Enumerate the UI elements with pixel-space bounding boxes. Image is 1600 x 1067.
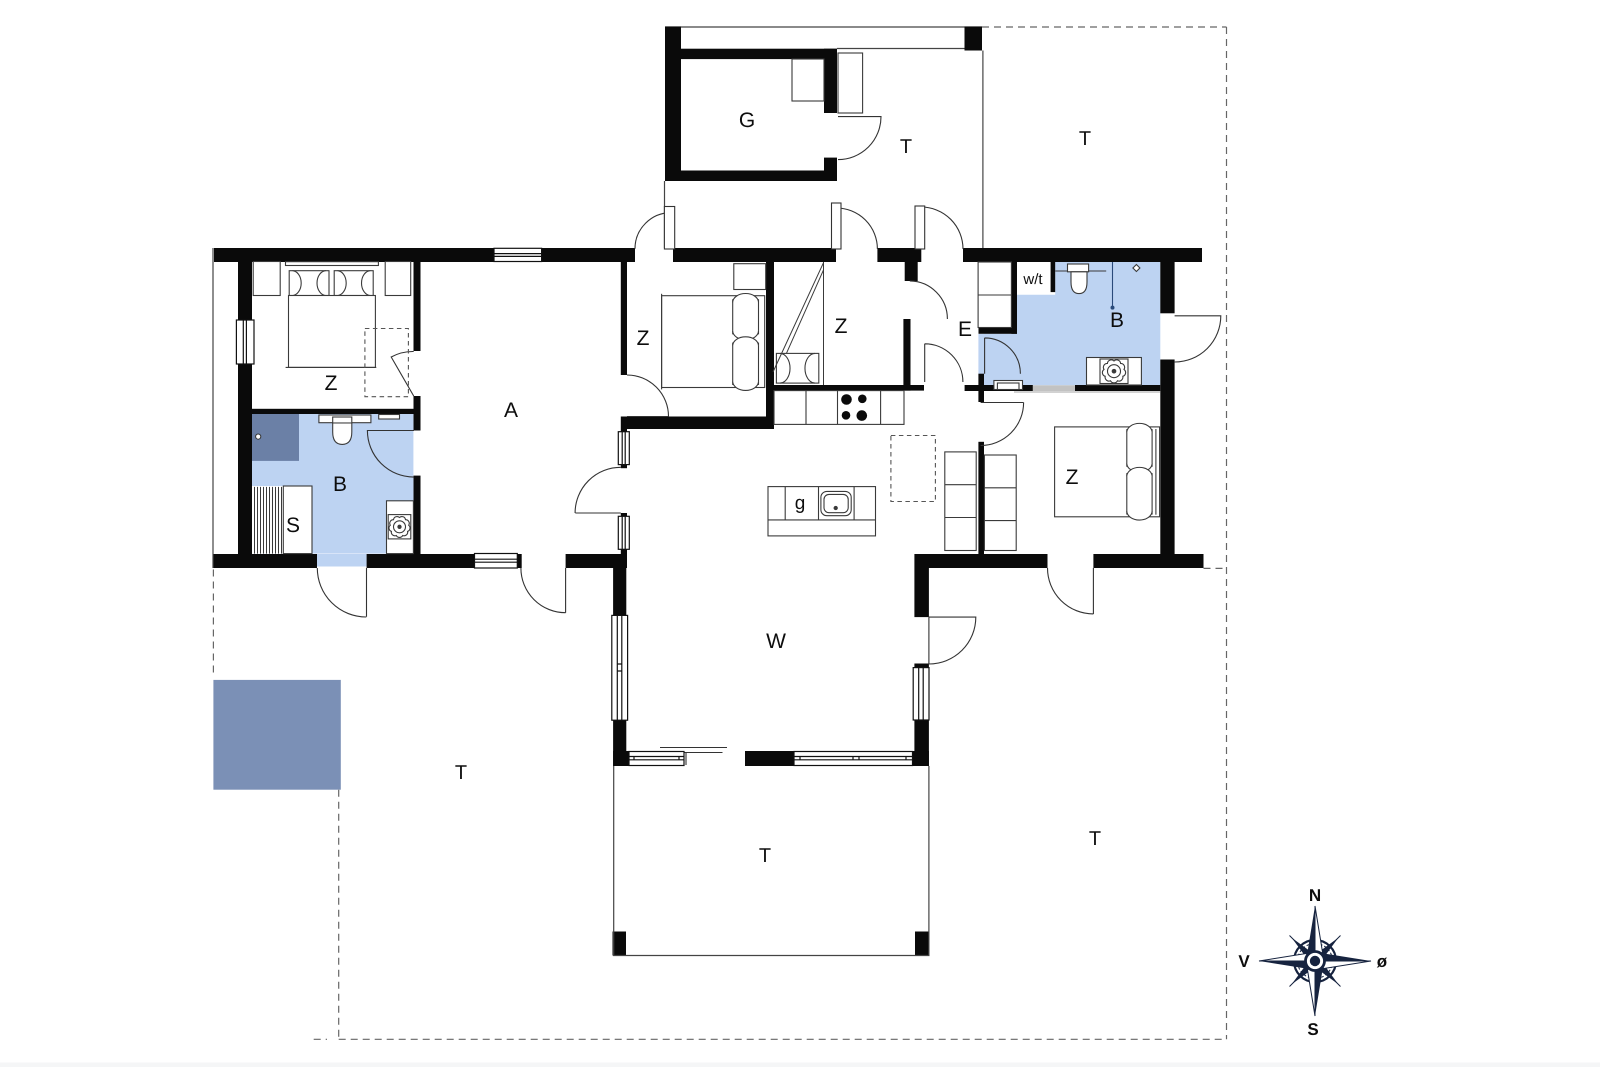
svg-text:A: A [504,399,518,422]
svg-text:B: B [333,473,347,496]
svg-text:E: E [958,318,972,341]
svg-text:S: S [1307,1020,1318,1039]
svg-text:T: T [759,845,771,867]
svg-text:S: S [286,514,300,537]
svg-text:W: W [766,630,786,653]
svg-text:T: T [1079,128,1091,150]
svg-text:Z: Z [1066,466,1079,489]
svg-text:T: T [900,136,912,158]
svg-text:B: B [1110,309,1124,332]
svg-text:T: T [1089,828,1101,850]
svg-text:ø: ø [1377,952,1388,971]
svg-text:T: T [455,762,467,784]
svg-text:G: G [739,109,755,132]
svg-text:g: g [795,493,806,514]
svg-text:Z: Z [835,315,848,338]
svg-text:V: V [1238,952,1250,971]
svg-text:Z: Z [325,372,338,395]
svg-text:N: N [1309,886,1321,905]
svg-text:Z: Z [637,327,650,350]
svg-text:w/t: w/t [1022,271,1043,288]
